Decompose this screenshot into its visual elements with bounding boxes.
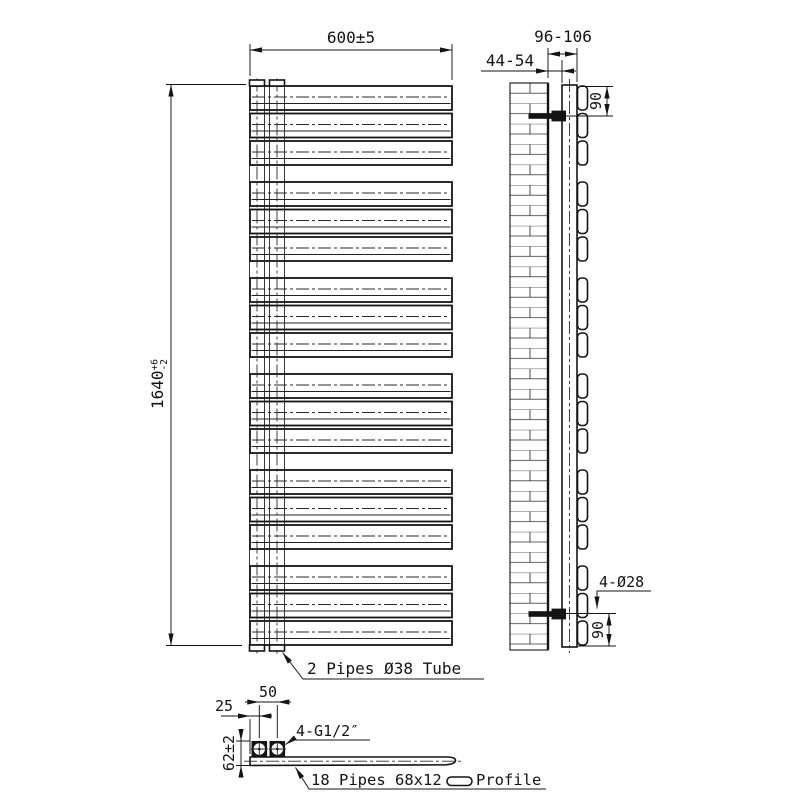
pipe-fitting-2 [269,741,286,758]
profile-shape-glyph [447,777,472,786]
dim-bottom-bracket-text: 90 [589,621,607,639]
radiator-panel [250,306,452,330]
radiator-panel [250,374,452,398]
radiator-panels [250,86,452,645]
dim-depth62-text: 62±2 [220,735,238,771]
radiator-panel [250,470,452,494]
side-panel-section [578,402,588,426]
holes-label-text: 4-Ø28 [599,573,644,591]
dim-wall-gap-text: 44-54 [486,51,534,70]
technical-drawing-page: 600±5 1640+6-2 96-106 44-54 90 90 [0,0,800,800]
dim-offset-text: 25 [215,697,233,715]
radiator-panel [250,333,452,357]
side-panel-section [578,333,588,357]
radiator-panel [250,429,452,453]
radiator-panel [250,278,452,302]
note-thread-g12: 4-G1/2″ [286,722,371,745]
radiator-panel [250,594,452,618]
pipe-fitting-1 [251,741,268,758]
dim-top-bracket-text: 90 [587,92,605,110]
side-panel-section [578,429,588,453]
radiator-panel [250,141,452,165]
radiator-panel [250,498,452,522]
dim-depth-text: 96-106 [534,27,592,46]
radiator-panel [250,114,452,138]
profile-label-prefix-text: 18 Pipes 68x12 [311,771,442,789]
dim-spacing-50: 50 [245,683,291,738]
note-18-pipes-profile: 18 Pipes 68x12 Profile [296,768,547,790]
dim-wall-gap-44-54: 44-54 [481,51,576,83]
side-panel-section [578,470,588,494]
side-panel-section [578,525,588,549]
dim-depth-62: 62±2 [220,729,250,777]
radiator-panel [250,237,452,261]
dim-depth-96-106: 96-106 [534,27,592,82]
side-panel-section [578,374,588,398]
side-panel-section [578,621,588,645]
brick-wall [510,83,548,650]
side-panel-section [578,86,588,110]
side-panel-section [578,141,588,165]
note-2-pipes: 2 Pipes Ø38 Tube [283,653,485,680]
radiator-panel [250,621,452,645]
bottom-view [244,741,462,766]
side-panel-section [578,498,588,522]
note-holes-4-d28: 4-Ø28 [597,573,651,609]
radiator-panel [250,525,452,549]
dim-height-text: 1640+6-2 [148,359,170,409]
radiator-panel [250,210,452,234]
side-panel-sections [578,86,588,645]
dim-width-text: 600±5 [327,28,375,47]
side-panel-section [578,566,588,590]
radiator-drawing: 600±5 1640+6-2 96-106 44-54 90 90 [0,0,800,800]
radiator-panel [250,402,452,426]
front-view [250,79,453,654]
side-panel-section [578,210,588,234]
pipes-label-text: 2 Pipes Ø38 Tube [307,659,461,678]
side-panel-section [578,278,588,302]
dim-width-600: 600±5 [250,28,452,80]
radiator-panel [250,86,452,110]
side-panel-section [578,182,588,206]
side-panel-section [578,306,588,330]
profile-label-suffix-text: Profile [476,771,541,789]
dim-height-1640: 1640+6-2 [148,85,246,646]
radiator-panel [250,566,452,590]
thread-label-text: 4-G1/2″ [296,722,359,740]
side-panel-section [578,114,588,138]
dim-spacing-text: 50 [259,683,277,701]
radiator-panel [250,182,452,206]
side-view [510,79,588,653]
side-panel-section [578,237,588,261]
